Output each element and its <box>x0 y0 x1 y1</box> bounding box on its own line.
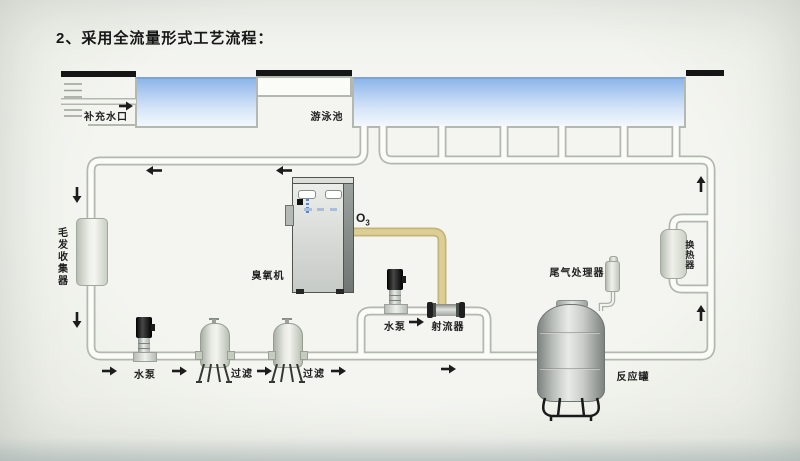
pump-band <box>389 295 401 296</box>
filter-1-label: 过滤 <box>227 369 257 381</box>
pump-motor <box>387 269 403 290</box>
pump-motor <box>136 317 152 338</box>
panel-indicator-icon <box>306 199 309 214</box>
tank-seam <box>540 368 600 370</box>
tank-seam <box>540 332 600 334</box>
hair-collector-label: 毛发收集器 <box>55 221 67 293</box>
flow-arrow-up-icon <box>697 305 706 321</box>
injector-flange <box>459 302 465 318</box>
pump-base <box>133 352 157 362</box>
flow-arrow-left-icon <box>146 166 162 175</box>
jet-injector <box>427 302 465 318</box>
filter-tank <box>200 323 230 368</box>
makeup-water-inlet-label: 补充水口 <box>80 112 132 124</box>
tank-body <box>537 304 605 402</box>
flow-arrow-right-icon <box>331 367 346 376</box>
injector-pump-label: 水泵 <box>380 322 410 334</box>
flow-arrow-up-icon <box>697 176 706 192</box>
ozone-subscript: 3 <box>365 218 369 227</box>
filter-2-label: 过滤 <box>299 369 329 381</box>
panel-switch-icon <box>297 199 303 205</box>
injector-collar <box>433 303 436 317</box>
tail-gas-processor-label: 尾气处理器 <box>548 268 606 280</box>
swimming-pool-label: 游泳池 <box>305 112 349 124</box>
injector-booster-pump <box>383 269 407 314</box>
heat-exchanger-label: 换热器 <box>684 233 694 277</box>
flow-arrow-right-icon <box>102 367 117 376</box>
filter-nozzle <box>268 351 276 360</box>
pump-junction-box <box>402 276 406 283</box>
main-pump-label: 水泵 <box>130 370 160 382</box>
filter-nozzle <box>227 351 235 360</box>
tail-gas-body <box>605 261 620 292</box>
filter-tank <box>273 323 303 368</box>
hair-collector <box>76 218 108 286</box>
injector-flange <box>427 302 433 318</box>
ozone-generator-side <box>343 183 354 293</box>
reaction-tank-label: 反应罐 <box>612 372 654 384</box>
ozone-generator <box>292 177 354 293</box>
side-vent <box>285 205 294 226</box>
panel-display-icon <box>325 190 342 199</box>
filter-nozzle <box>195 351 203 360</box>
ozone-gas-label: O3 <box>356 212 370 228</box>
pump-band <box>389 300 401 301</box>
tank-stand <box>537 397 605 423</box>
reaction-tank <box>537 300 605 421</box>
cabinet-foot <box>296 289 304 294</box>
jet-injector-label: 射流器 <box>428 322 468 334</box>
page-bottom-shade <box>0 438 800 461</box>
panel-text-row <box>317 208 324 211</box>
flow-arrows <box>73 102 706 376</box>
filter-nozzle <box>300 351 308 360</box>
flow-arrow-right-icon <box>441 365 456 374</box>
flow-arrow-down-icon <box>73 312 82 328</box>
process-flow-diagram: 2、采用全流量形式工艺流程： <box>0 0 800 461</box>
flow-arrow-left-icon <box>276 166 292 175</box>
ozone-symbol: O <box>356 211 365 225</box>
ozone-machine-label: 臭氧机 <box>250 271 286 283</box>
flow-arrow-right-icon <box>409 318 424 327</box>
cabinet-foot <box>336 289 344 294</box>
pump-base <box>384 304 408 314</box>
pump-junction-box <box>151 324 155 331</box>
pump-band <box>138 348 150 349</box>
pipe-outlines <box>61 102 712 357</box>
heat-exchanger <box>660 229 687 279</box>
main-circulation-pump <box>132 317 156 362</box>
tail-gas-processor <box>605 256 620 295</box>
pump-band <box>138 343 150 344</box>
panel-text-row <box>330 208 337 211</box>
panel-text-row <box>304 208 312 211</box>
flow-arrow-right-icon <box>172 367 187 376</box>
flow-arrow-down-icon <box>73 187 82 203</box>
panel-display-icon <box>298 190 316 199</box>
